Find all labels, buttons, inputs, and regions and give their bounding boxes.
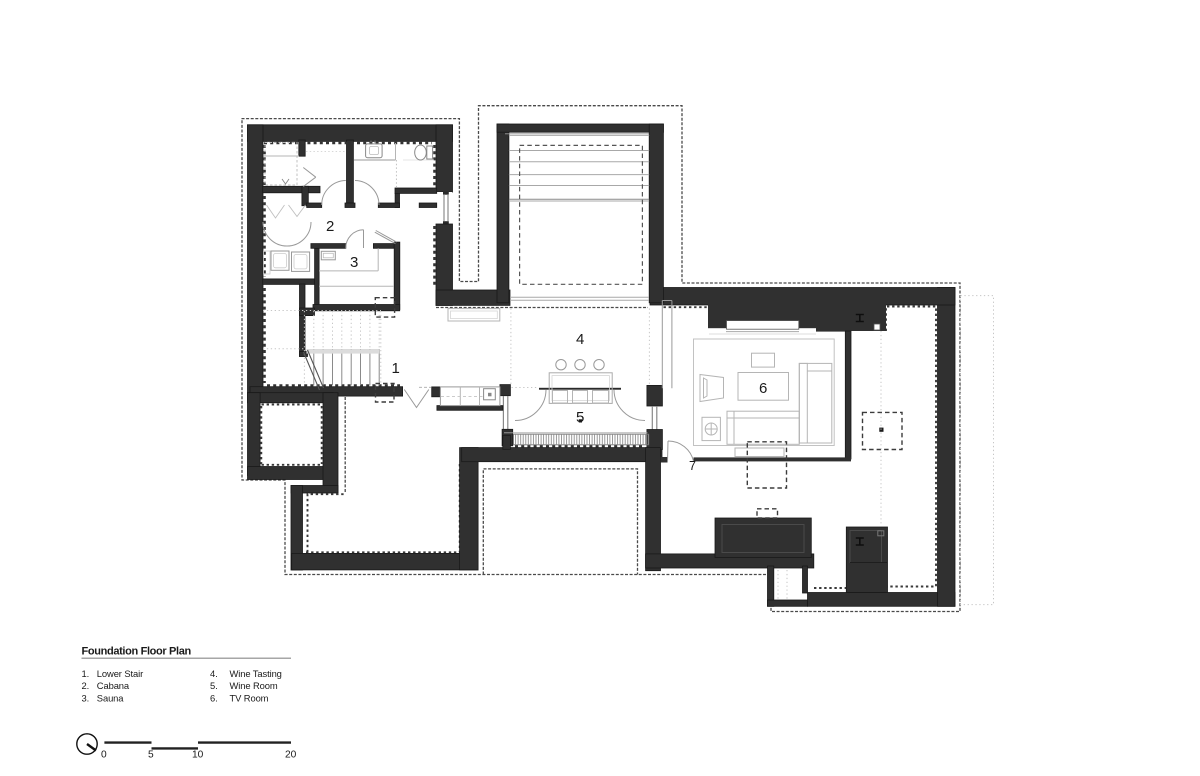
svg-text:0: 0 [101,750,107,761]
svg-text:Cabana: Cabana [97,680,130,691]
svg-text:7: 7 [689,459,696,473]
svg-text:3: 3 [350,254,358,271]
svg-text:Sauna: Sauna [97,693,124,704]
svg-text:1: 1 [392,360,400,377]
svg-text:3.: 3. [82,693,90,704]
svg-text:4.: 4. [210,668,218,679]
svg-text:5: 5 [576,409,584,426]
svg-text:5.: 5. [210,680,218,691]
svg-text:Wine Room: Wine Room [230,680,278,691]
svg-text:20: 20 [285,750,297,761]
svg-text:TV Room: TV Room [230,693,269,704]
svg-text:Wine Tasting: Wine Tasting [230,668,282,679]
svg-text:6.: 6. [210,693,218,704]
svg-text:10: 10 [192,750,204,761]
svg-text:1.: 1. [82,668,90,679]
svg-text:2: 2 [326,218,334,235]
svg-text:Foundation Floor Plan: Foundation Floor Plan [82,646,192,658]
svg-text:4: 4 [576,331,584,348]
svg-text:Lower Stair: Lower Stair [97,668,143,679]
svg-text:2.: 2. [82,680,90,691]
svg-text:5: 5 [148,750,154,761]
svg-text:6: 6 [759,380,767,397]
